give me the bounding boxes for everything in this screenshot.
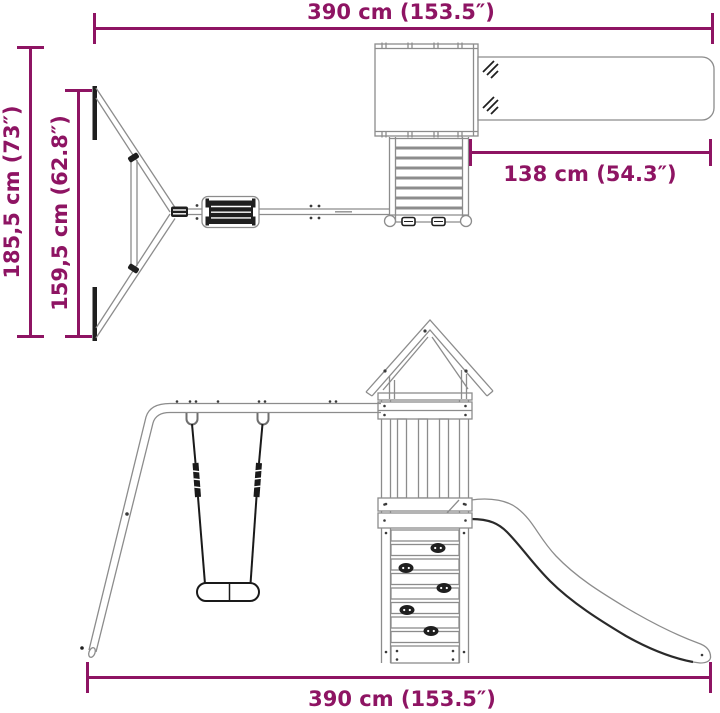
swing-seat <box>197 583 259 601</box>
dim-depth-swing-label: 159,5 cm (62.8″) <box>48 115 72 311</box>
dim-width-top: 390 cm (153.5″) <box>93 0 714 44</box>
tower-elevation <box>378 393 472 663</box>
swing-hanger <box>187 413 198 425</box>
climbing-wall-elevation <box>391 530 459 643</box>
wall-foot <box>385 216 396 227</box>
front-view <box>80 320 710 663</box>
slide-plan <box>478 57 714 120</box>
dim-slide-length-label: 138 cm (54.3″) <box>503 162 676 186</box>
rock-hold <box>399 563 414 573</box>
swing-hanger <box>258 413 269 425</box>
dim-width-top-label: 390 cm (153.5″) <box>307 0 495 24</box>
dim-width-bottom-label: 390 cm (153.5″) <box>308 687 496 711</box>
wall-foot <box>461 216 472 227</box>
tower-roof-plan <box>375 43 478 138</box>
swing-frame-plan <box>93 86 189 341</box>
swing-foot-plate <box>93 86 98 140</box>
playset-dimension-diagram: 390 cm (153.5″) 185,5 cm (73″) 159,5 cm … <box>0 0 720 713</box>
dim-width-bottom: 390 cm (153.5″) <box>86 662 712 711</box>
dim-slide-length: 138 cm (54.3″) <box>470 139 711 186</box>
swing-seat-plan <box>202 197 259 228</box>
top-view <box>93 43 715 342</box>
rock-hold <box>431 543 446 553</box>
climbing-wall-plan <box>385 137 472 227</box>
roof-elevation <box>366 320 493 399</box>
rock-hold <box>424 626 439 636</box>
diagram-canvas: 390 cm (153.5″) 185,5 cm (73″) 159,5 cm … <box>0 0 720 713</box>
swing-elevation <box>80 400 381 658</box>
swing-leg <box>80 404 170 659</box>
dim-depth-total: 185,5 cm (73″) <box>0 46 44 338</box>
apex-connector <box>171 207 188 218</box>
swing-rope <box>192 424 205 584</box>
dim-depth-total-label: 185,5 cm (73″) <box>0 105 24 278</box>
balustrade-slats <box>398 419 449 498</box>
dim-depth-swing: 159,5 cm (62.8″) <box>48 89 92 338</box>
rock-hold <box>400 605 415 615</box>
slide-elevation <box>471 499 711 663</box>
swing-foot-plate <box>93 287 98 341</box>
rock-hold <box>437 583 452 593</box>
swing-rope <box>251 424 263 584</box>
